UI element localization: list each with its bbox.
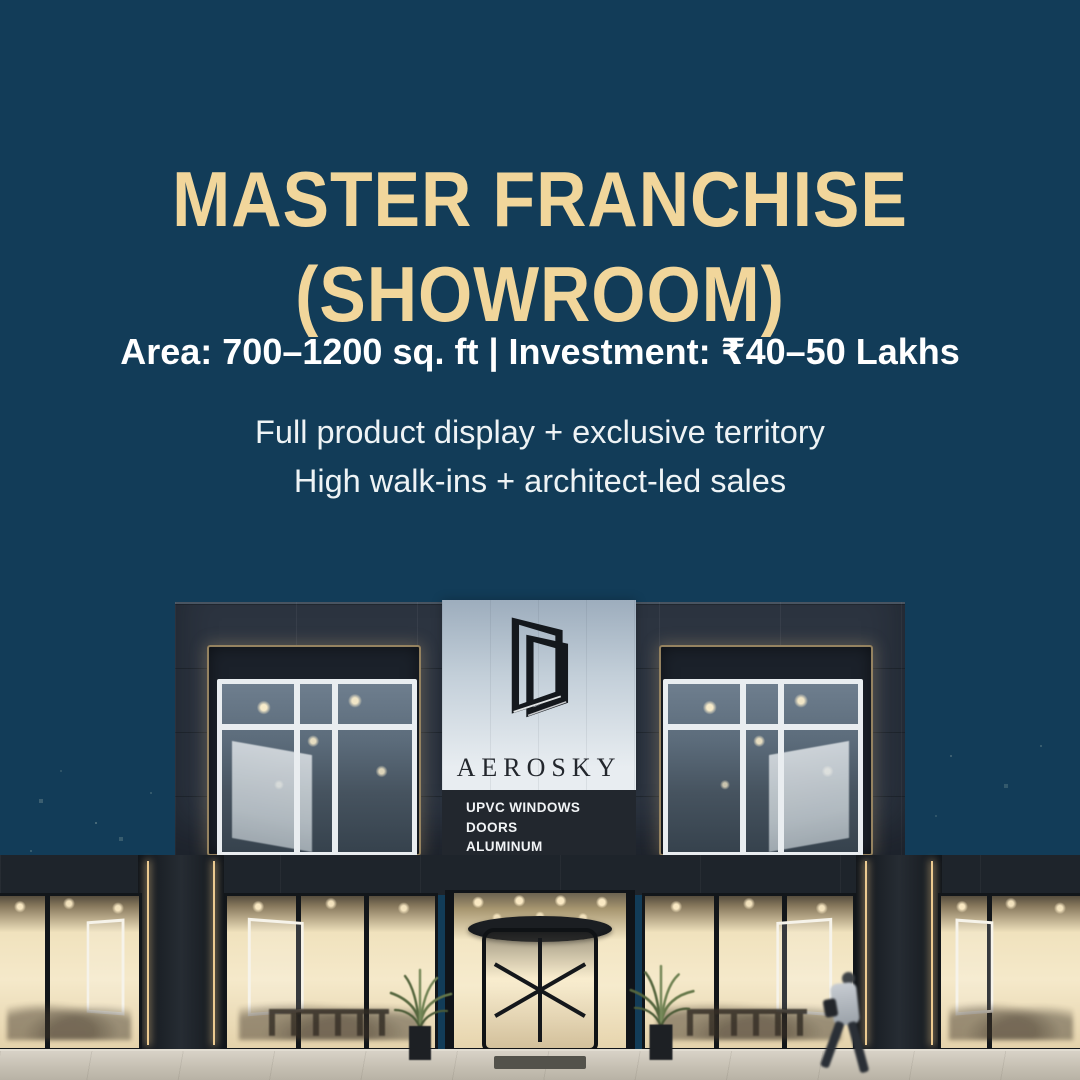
potted-plant-right — [622, 962, 700, 1062]
entrance-mat — [494, 1056, 586, 1069]
potted-plant-left — [383, 966, 457, 1062]
distant-city-lights — [0, 560, 2, 562]
window-mullion — [332, 684, 338, 852]
upper-window-right — [663, 679, 863, 857]
sign-line: UPVC WINDOWS — [466, 798, 636, 818]
window-mullion — [778, 684, 784, 852]
brand-sign-panel: AEROSKY — [442, 600, 636, 790]
product-sign-band: UPVC WINDOWS DOORS ALUMINUM — [442, 790, 636, 856]
revolving-door — [482, 928, 598, 1052]
pedestrian-leg — [820, 1020, 845, 1068]
showroom-photo: AEROSKY UPVC WINDOWS DOORS ALUMINUM — [0, 0, 1080, 1080]
window-transom — [222, 724, 412, 730]
upper-window-left — [217, 679, 417, 857]
sign-line: DOORS — [466, 818, 636, 838]
storefront-mullion — [714, 896, 719, 1048]
table-and-chairs — [269, 996, 390, 1036]
door-display — [248, 918, 304, 1017]
storefront-mullion — [364, 896, 369, 1048]
brand-name: AEROSKY — [442, 753, 636, 783]
window-transom — [668, 724, 858, 730]
door-display — [955, 919, 993, 1016]
storefront-left-wing — [0, 893, 142, 1051]
storefront-mullion — [45, 896, 50, 1048]
franchise-poster: MASTER FRANCHISE (SHOWROOM) Area: 700–12… — [0, 0, 1080, 1080]
storefront-right-wing — [938, 893, 1080, 1051]
pedestrian — [822, 972, 872, 1076]
door-display — [87, 919, 125, 1016]
aerosky-window-logo-icon — [493, 612, 585, 730]
led-pillar-left — [138, 855, 224, 1055]
sign-line: ALUMINUM — [466, 837, 636, 857]
window-mullion — [294, 684, 300, 852]
window-mullion — [740, 684, 746, 852]
pedestrian-leg — [847, 1021, 869, 1074]
table-and-chairs — [687, 996, 808, 1036]
